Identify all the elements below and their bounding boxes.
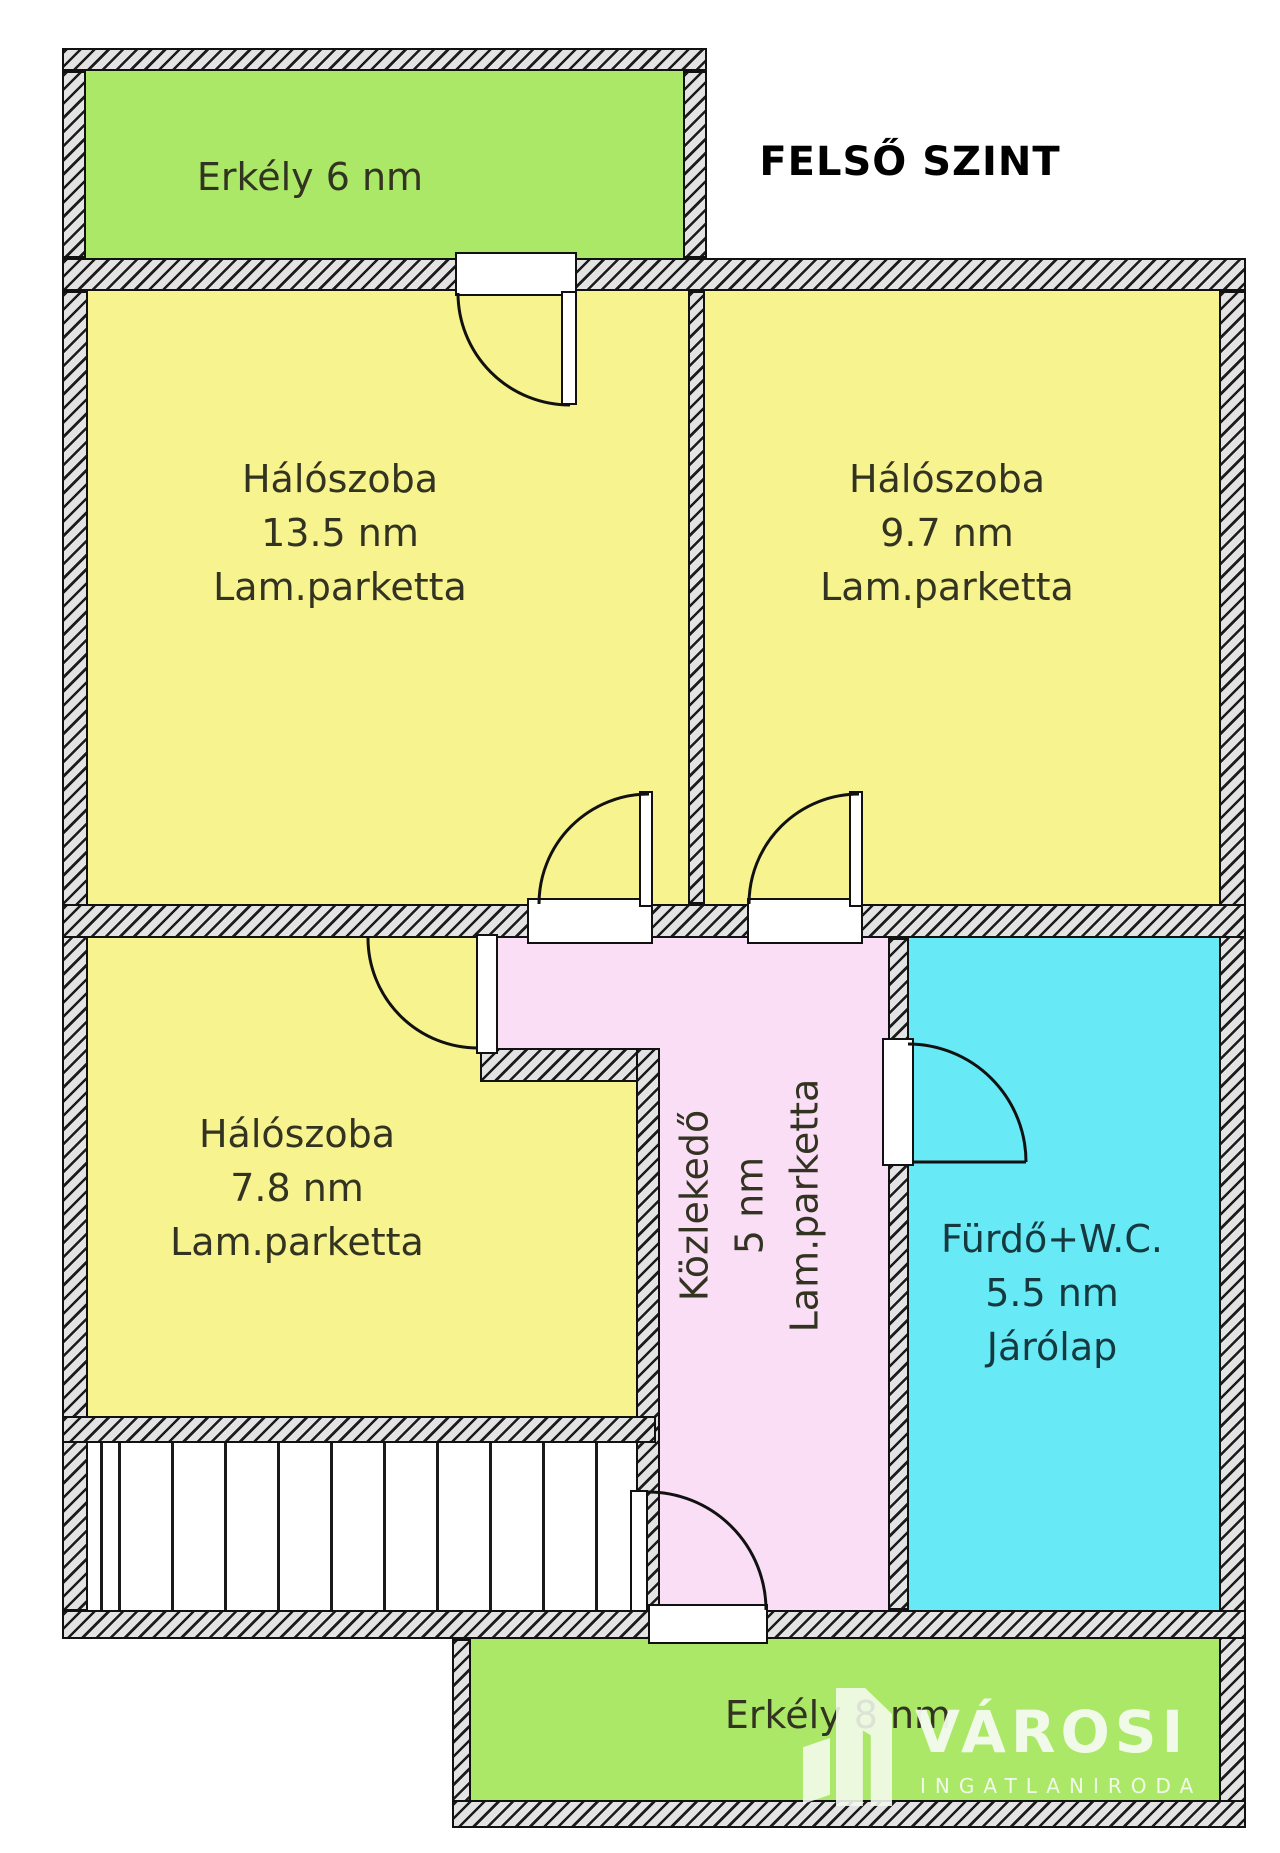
wall-building-right [1219,291,1246,1828]
room-name: Hálószoba [140,452,540,506]
watermark-subtitle: INGATLANIRODA [920,1774,1202,1798]
room-name: Fürdő+W.C. [852,1212,1252,1266]
room-floor: Lam.parketta [97,1215,497,1269]
bedroom-right-door-leaf [849,791,863,907]
room-area: 5 nm [723,1076,778,1336]
bathroom-label: Fürdő+W.C. 5.5 nm Járólap [852,1212,1252,1374]
wall-middle [62,904,1246,938]
room-area: 9.7 nm [747,506,1147,560]
watermark-brand: VÁROSI [915,1698,1188,1766]
bedroom-small-label: Hálószoba 7.8 nm Lam.parketta [97,1107,497,1269]
room-floor: Járólap [852,1320,1252,1374]
floor-plan: FELSŐ SZINT Erkély 6 nm Hálószoba 13.5 n… [0,0,1280,1853]
balcony-door-leaf [561,291,577,405]
bedroom-small-area-2 [486,1082,656,1416]
room-floor: Lam.parketta [747,560,1147,614]
bedroom-large-label: Hálószoba 13.5 nm Lam.parketta [140,452,540,614]
hallway-arm-area [498,938,888,1048]
bedroom-large-door-opening [527,898,653,944]
room-floor: Lam.parketta [140,560,540,614]
wall-bedroom-small-bottom [62,1416,656,1443]
page-title: FELSŐ SZINT [700,135,1120,189]
bedroom-right-door-opening [747,898,863,944]
bedroom-large-door-leaf [639,791,653,907]
balcony2-door-leaf [630,1490,648,1612]
room-area: 13.5 nm [140,506,540,560]
wall-bedroom-divider [688,291,705,904]
room-floor: Lam.parketta [778,1076,833,1336]
room-area: 7.8 nm [97,1161,497,1215]
bedroom-small-door-leaf [476,934,498,1054]
balcony2-door-opening [648,1604,768,1644]
watermark-logo: VÁROSI INGATLANIRODA [800,1676,1260,1831]
room-name: Hálószoba [97,1107,497,1161]
room-name: Közlekedő [668,1076,723,1336]
hallway-label: Közlekedő 5 nm Lam.parketta [668,1076,833,1336]
building-icon [803,1738,830,1804]
bedroom-right-label: Hálószoba 9.7 nm Lam.parketta [747,452,1147,614]
balcony-top-label: Erkély 6 nm [60,150,560,204]
wall-hall-arm-bottom [480,1048,656,1082]
bathroom-door-opening [882,1038,914,1166]
balcony-door-opening [455,252,577,296]
room-name: Hálószoba [747,452,1147,506]
wall-building-left [62,291,88,1611]
room-area: 5.5 nm [852,1266,1252,1320]
building-icon [836,1688,892,1806]
wall-building-top [62,258,1246,291]
wall-balcony-top [62,48,707,71]
staircase-area [88,1443,636,1610]
